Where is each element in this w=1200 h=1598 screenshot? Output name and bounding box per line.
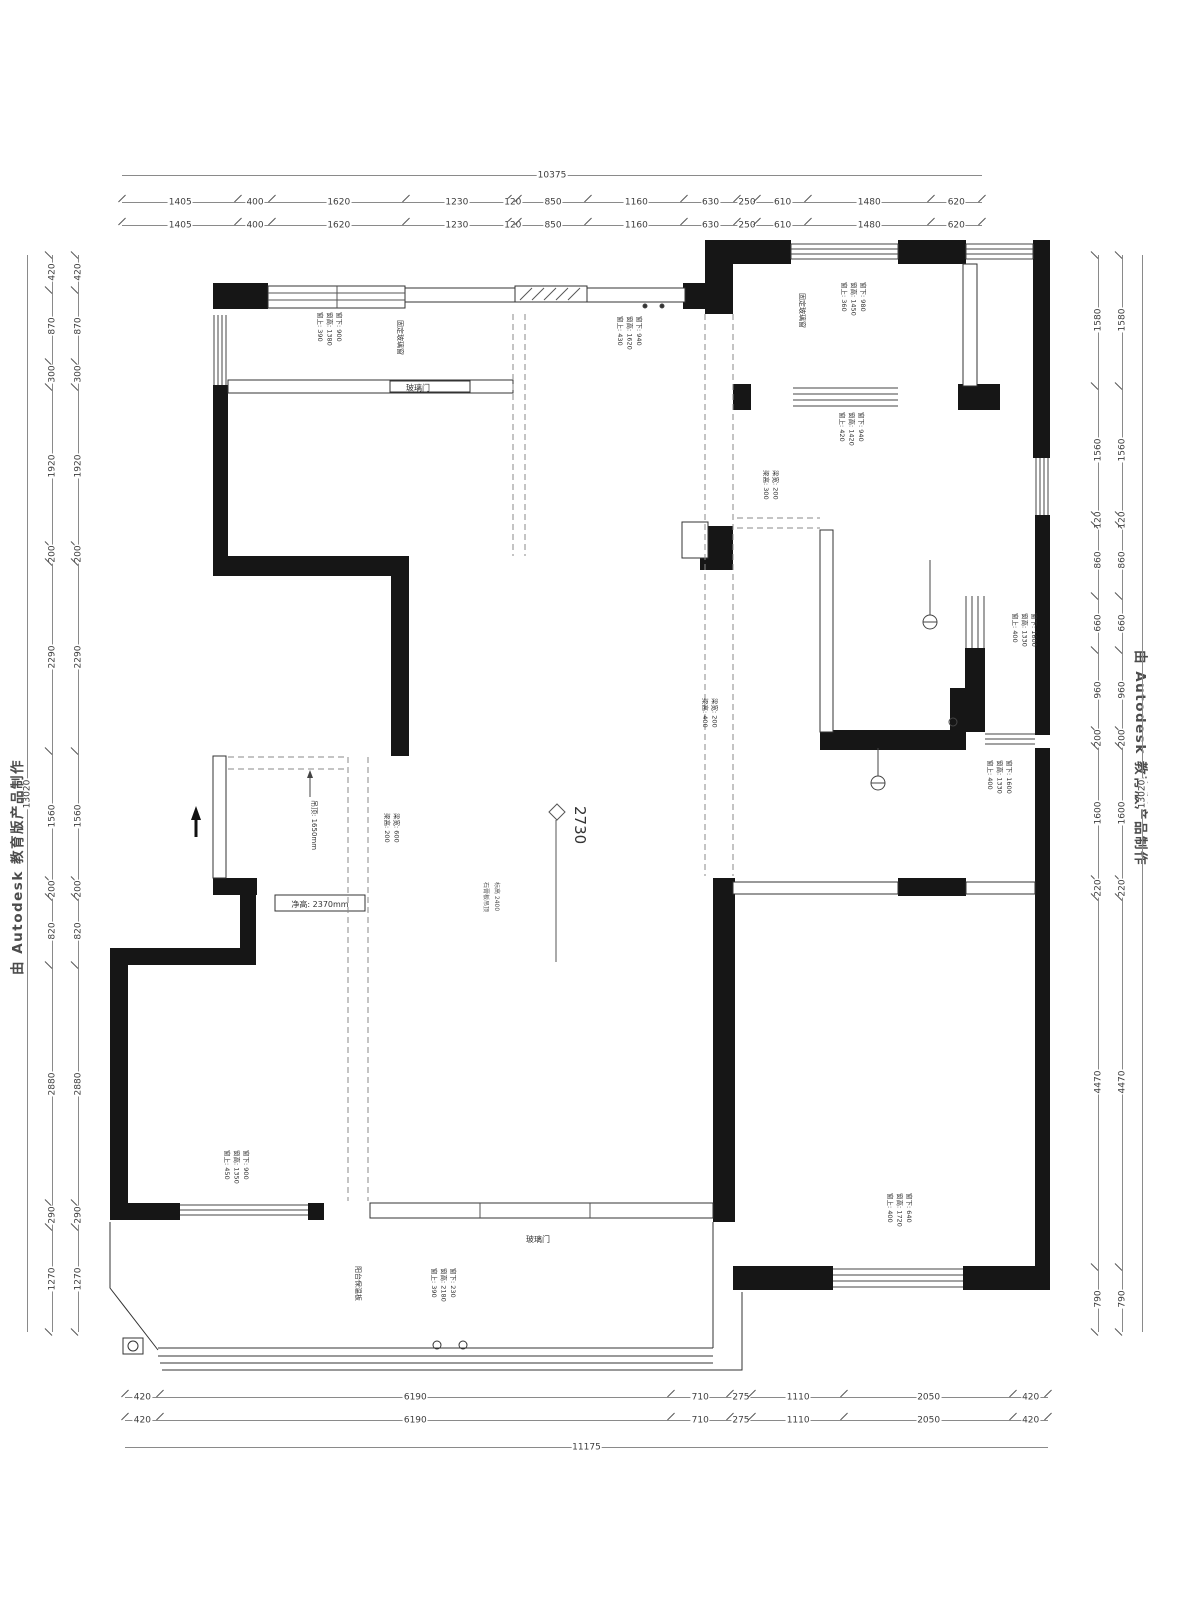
dimension-value: 300 xyxy=(48,365,57,384)
dimension-segment: 200 xyxy=(46,545,59,562)
window-annotation-line: 窗上: 390 xyxy=(316,312,325,342)
window-annotation-line: 窗下: 980 xyxy=(859,282,868,312)
dimension-segment: 870 xyxy=(46,290,59,362)
dim-chain-left-col1: 4208703001920200229015602008202880290127… xyxy=(46,255,59,1332)
dimension-segment: 300 xyxy=(46,362,59,387)
dimension-value: 620 xyxy=(947,198,966,207)
dimension-value: 660 xyxy=(1118,614,1127,633)
dimension-value: 6190 xyxy=(403,1393,428,1402)
dimension-segment: 1110 xyxy=(752,1414,844,1427)
dimension-value: 860 xyxy=(1118,551,1127,570)
clear-height-label: 净高: 2370mm xyxy=(291,899,348,909)
dim-chain-left-col2: 4208703001920200229015602008202880290127… xyxy=(72,255,85,1332)
dimension-value: 790 xyxy=(1094,1290,1103,1309)
dimension-value: 620 xyxy=(947,221,966,230)
dimension-segment: 1230 xyxy=(406,196,508,209)
dimension-value: 1560 xyxy=(1094,438,1103,463)
dimension-segment: 1480 xyxy=(808,219,931,232)
dimension-value: 200 xyxy=(48,879,57,898)
dimension-segment: 710 xyxy=(671,1391,730,1404)
dimension-value: 1620 xyxy=(326,221,351,230)
window-annotation-line: 窗下: 640 xyxy=(905,1193,914,1223)
dimension-segment: 1620 xyxy=(272,196,406,209)
dimension-segment: 1920 xyxy=(72,387,85,546)
dimension-value: 275 xyxy=(731,1393,750,1402)
dimension-value: 400 xyxy=(245,198,264,207)
dimension-segment: 660 xyxy=(1092,596,1105,651)
window-annotation-line: 窗高: 1620 xyxy=(626,316,635,350)
dimension-segment: 1480 xyxy=(808,196,931,209)
dimension-value: 4470 xyxy=(1094,1069,1103,1094)
dimension-value: 960 xyxy=(1094,681,1103,700)
dimension-segment: 960 xyxy=(1092,650,1105,729)
dimension-value: 960 xyxy=(1118,681,1127,700)
dimension-value: 2050 xyxy=(916,1416,941,1425)
dimension-segment: 630 xyxy=(684,196,736,209)
fixed-glass-label-left: 固定玻璃窗 xyxy=(396,320,405,355)
dimension-value: 200 xyxy=(74,544,83,563)
window-annotation-line: 窗上: 430 xyxy=(616,316,625,346)
glass-door-label-bottom: 玻璃门 xyxy=(526,1234,550,1244)
dimension-segment: 620 xyxy=(931,196,982,209)
dimension-value: 630 xyxy=(701,221,720,230)
window-annotation-line: 窗高: 1420 xyxy=(848,412,857,446)
dimension-value: 2290 xyxy=(74,644,83,669)
dimension-value: 220 xyxy=(1118,878,1127,897)
dimension-value: 6190 xyxy=(403,1416,428,1425)
dimension-segment: 1600 xyxy=(1116,746,1129,878)
dimension-segment: 610 xyxy=(757,219,808,232)
dimension-value: 2880 xyxy=(48,1071,57,1096)
dimension-value: 1480 xyxy=(857,198,882,207)
dimension-value: 820 xyxy=(74,921,83,940)
dimension-value: 420 xyxy=(1021,1416,1040,1425)
dim-total-left-value: 13020 xyxy=(23,778,32,809)
dimension-value: 2290 xyxy=(48,644,57,669)
window-annotation-line: 窗上: 400 xyxy=(886,1193,895,1223)
dimension-segment: 1600 xyxy=(1092,746,1105,878)
dimension-value: 200 xyxy=(74,879,83,898)
dimension-value: 1560 xyxy=(48,803,57,828)
window-annotation-line: 窗高: 1350 xyxy=(233,1150,242,1184)
dimension-segment: 2880 xyxy=(46,965,59,1203)
window-annotation-line: 窗下: 940 xyxy=(635,316,644,346)
floorplan-drawing: 2730 玻璃门 玻璃门 净高: 2370mm 吊顶: 1650mm 固定玻璃窗… xyxy=(0,0,1200,1598)
dimension-segment: 1405 xyxy=(122,196,238,209)
ceiling-height-value: 2730 xyxy=(571,806,589,844)
window-annotation-line: 窗高: 1720 xyxy=(896,1193,905,1227)
dimension-segment: 660 xyxy=(1116,596,1129,651)
dimension-value: 610 xyxy=(773,198,792,207)
dimension-value: 710 xyxy=(691,1416,710,1425)
dim-total-right: 13020 xyxy=(1136,255,1149,1332)
dimension-segment: 420 xyxy=(72,255,85,290)
dimension-segment: 630 xyxy=(684,219,736,232)
dim-total-bottom-value: 11175 xyxy=(571,1443,602,1452)
dimension-segment: 1620 xyxy=(272,219,406,232)
dimension-segment: 870 xyxy=(72,290,85,362)
dimension-value: 1580 xyxy=(1118,308,1127,333)
dimension-segment: 2050 xyxy=(844,1414,1013,1427)
window-annotation-line: 窗上: 390 xyxy=(430,1268,439,1298)
balcony-rails xyxy=(110,1222,742,1370)
dimension-value: 870 xyxy=(48,316,57,335)
dimension-segment: 790 xyxy=(1116,1267,1129,1332)
window-annotation-line: 窗上: 450 xyxy=(223,1150,232,1180)
window-annotation-line: 窗下: 900 xyxy=(335,312,344,342)
dimension-value: 790 xyxy=(1118,1290,1127,1309)
window-annotation-line: 梁宽: 200 xyxy=(772,470,781,500)
window-annotation-line: 梁高: 300 xyxy=(762,470,771,500)
dim-total-top-value: 10375 xyxy=(537,171,568,180)
dimension-segment: 420 xyxy=(46,255,59,290)
dimension-segment: 1560 xyxy=(46,751,59,880)
dimension-segment: 220 xyxy=(1092,879,1105,897)
dimension-value: 290 xyxy=(74,1205,83,1224)
dimension-segment: 6190 xyxy=(160,1414,671,1427)
dimension-value: 1600 xyxy=(1118,800,1127,825)
dimension-value: 200 xyxy=(1094,728,1103,747)
dimension-value: 820 xyxy=(48,921,57,940)
dimension-value: 870 xyxy=(74,316,83,335)
dimension-segment: 860 xyxy=(1092,525,1105,596)
dimension-segment: 1160 xyxy=(588,219,684,232)
dimension-value: 4470 xyxy=(1118,1069,1127,1094)
entry-arrow-icon xyxy=(191,806,201,837)
dimension-segment: 200 xyxy=(46,880,59,897)
dim-total-bottom: 11175 xyxy=(125,1441,1048,1454)
window-annotation-line: 窗高: 2180 xyxy=(440,1268,449,1302)
window-annotation-line: 窗下: 230 xyxy=(449,1268,458,1298)
ceiling-height-marker: 2730 xyxy=(549,804,589,962)
detail-lines xyxy=(268,286,590,1218)
window-symbols xyxy=(180,244,1048,1287)
dim-chain-top-row1: 1405400162012301208501160630250610148062… xyxy=(122,196,982,209)
window-annotation-line: 窗高: 1330 xyxy=(996,760,1005,794)
dimension-segment: 1580 xyxy=(1116,255,1129,386)
dimension-segment: 850 xyxy=(518,196,588,209)
dimension-value: 1405 xyxy=(168,198,193,207)
dim-chain-bottom-row1: 420619071027511102050420 xyxy=(125,1391,1048,1404)
dimension-value: 1580 xyxy=(1094,308,1103,333)
dimension-value: 420 xyxy=(1021,1393,1040,1402)
dimension-value: 290 xyxy=(48,1205,57,1224)
dim-total-top: 10375 xyxy=(122,169,982,182)
window-annotation-line: 梁高: 400 xyxy=(701,698,710,728)
dimension-value: 200 xyxy=(48,544,57,563)
dimension-value: 400 xyxy=(245,221,264,230)
dimension-segment: 200 xyxy=(72,880,85,897)
dimension-value: 850 xyxy=(543,198,562,207)
dimension-value: 660 xyxy=(1094,614,1103,633)
dimension-value: 1480 xyxy=(857,221,882,230)
dimension-segment: 1580 xyxy=(1092,255,1105,386)
dimension-segment: 275 xyxy=(730,1414,753,1427)
window-annotation-line: 梁宽: 200 xyxy=(711,698,720,728)
wall-solids xyxy=(110,240,1050,1290)
dimension-segment: 610 xyxy=(757,196,808,209)
dimension-segment: 2050 xyxy=(844,1391,1013,1404)
dimension-segment: 860 xyxy=(1116,525,1129,596)
dimension-segment: 1270 xyxy=(72,1227,85,1332)
dimension-segment: 960 xyxy=(1116,650,1129,729)
window-annotation-line: 窗上: 420 xyxy=(838,412,847,442)
dimension-segment: 1560 xyxy=(72,751,85,880)
dimension-segment: 1230 xyxy=(406,219,508,232)
dimension-segment: 820 xyxy=(72,897,85,965)
window-annotation-line: 窗上: 400 xyxy=(1011,613,1020,643)
dimension-segment: 790 xyxy=(1092,1267,1105,1332)
window-annotation-line: 窗高: 1450 xyxy=(850,282,859,316)
dim-chain-right-col2: 1580156012086066096020016002204470790 xyxy=(1116,255,1129,1332)
dim-chain-top-row2: 1405400162012301208501160630250610148062… xyxy=(122,219,982,232)
dimension-value: 1160 xyxy=(624,198,649,207)
dimension-value: 850 xyxy=(543,221,562,230)
dimension-segment: 2880 xyxy=(72,965,85,1203)
dimension-value: 630 xyxy=(701,198,720,207)
dimension-segment: 4470 xyxy=(1116,897,1129,1267)
dimension-value: 1600 xyxy=(1094,800,1103,825)
floorplan-sheet: 由 Autodesk 教育版产品制作 由 Autodesk 教育版产品制作 xyxy=(0,0,1200,1598)
dimension-segment: 420 xyxy=(1013,1414,1048,1427)
ceiling-detail-line1: 石膏板吊顶 xyxy=(482,882,490,912)
window-annotation-line: 窗下: 900 xyxy=(242,1150,251,1180)
dimension-segment: 2290 xyxy=(72,562,85,751)
dimension-segment: 1110 xyxy=(752,1391,844,1404)
dimension-value: 2880 xyxy=(74,1071,83,1096)
dimension-segment: 300 xyxy=(72,362,85,387)
window-annotation-line: 窗下: 940 xyxy=(857,412,866,442)
dimension-segment: 710 xyxy=(671,1414,730,1427)
window-annotation-line: 梁高: 200 xyxy=(383,813,392,843)
dimension-segment: 1160 xyxy=(588,196,684,209)
dimension-value: 420 xyxy=(133,1416,152,1425)
ceiling-note-label: 吊顶: 1650mm xyxy=(310,800,318,850)
dimension-segment: 420 xyxy=(1013,1391,1048,1404)
dimension-value: 1920 xyxy=(74,453,83,478)
dimension-segment: 250 xyxy=(737,219,758,232)
dimension-segment: 620 xyxy=(931,219,982,232)
dimension-segment: 1405 xyxy=(122,219,238,232)
dimension-segment: 820 xyxy=(46,897,59,965)
dimension-segment: 1560 xyxy=(1116,386,1129,515)
dimension-segment: 400 xyxy=(238,196,271,209)
dimension-value: 1405 xyxy=(168,221,193,230)
dimension-segment: 290 xyxy=(46,1203,59,1227)
dimension-segment: 850 xyxy=(518,219,588,232)
dimension-value: 1110 xyxy=(786,1393,811,1402)
dimension-segment: 1560 xyxy=(1092,386,1105,515)
glass-door-label-top: 玻璃门 xyxy=(406,383,430,393)
window-annotation-line: 窗高: 1380 xyxy=(326,312,335,346)
dimension-value: 1560 xyxy=(74,803,83,828)
dimension-segment: 290 xyxy=(72,1203,85,1227)
dimension-value: 2050 xyxy=(916,1393,941,1402)
balcony-note-label: 阳台保温板 xyxy=(354,1266,363,1301)
dimension-value: 1230 xyxy=(444,221,469,230)
dim-total-right-value: 13020 xyxy=(1138,778,1147,809)
dimension-value: 1270 xyxy=(74,1267,83,1292)
fixed-glass-label-right: 固定玻璃窗 xyxy=(798,293,807,328)
dimension-segment: 2290 xyxy=(46,562,59,751)
dimension-value: 275 xyxy=(731,1416,750,1425)
dim-chain-bottom-row2: 420619071027511102050420 xyxy=(125,1414,1048,1427)
dimension-value: 1620 xyxy=(326,198,351,207)
dimension-value: 1160 xyxy=(624,221,649,230)
dimension-segment: 4470 xyxy=(1092,897,1105,1267)
dimension-segment: 6190 xyxy=(160,1391,671,1404)
window-annotation-line: 窗上: 360 xyxy=(840,282,849,312)
dimension-segment: 1270 xyxy=(46,1227,59,1332)
ceiling-detail-line2: 标高 2400 xyxy=(493,882,501,911)
dimension-segment: 250 xyxy=(737,196,758,209)
dimension-value: 420 xyxy=(74,263,83,282)
ceiling-note-arrow xyxy=(307,770,313,778)
dimension-segment: 420 xyxy=(125,1414,160,1427)
dimension-value: 1270 xyxy=(48,1267,57,1292)
dimension-segment: 200 xyxy=(72,545,85,562)
dimension-value: 1920 xyxy=(48,453,57,478)
dim-total-left: 13020 xyxy=(21,255,34,1332)
dimension-value: 300 xyxy=(74,365,83,384)
window-annotation-line: 窗上: 400 xyxy=(986,760,995,790)
dimension-value: 220 xyxy=(1094,878,1103,897)
window-annotation-line: 窗高: 1330 xyxy=(1021,613,1030,647)
dimension-segment: 420 xyxy=(125,1391,160,1404)
dimension-value: 420 xyxy=(48,263,57,282)
dimension-value: 420 xyxy=(133,1393,152,1402)
dimension-segment: 400 xyxy=(238,219,271,232)
dimension-value: 200 xyxy=(1118,728,1127,747)
dimension-value: 1230 xyxy=(444,198,469,207)
dimension-segment: 1920 xyxy=(46,387,59,546)
window-annotation-line: 窗下: 1600 xyxy=(1030,613,1039,647)
window-annotation-line: 窗下: 1600 xyxy=(1005,760,1014,794)
dimension-value: 860 xyxy=(1094,551,1103,570)
window-annotation-line: 梁宽: 600 xyxy=(393,813,402,843)
dim-chain-right-col1: 1580156012086066096020016002204470790 xyxy=(1092,255,1105,1332)
dimension-segment: 275 xyxy=(730,1391,753,1404)
dimension-value: 610 xyxy=(773,221,792,230)
dimension-value: 1110 xyxy=(786,1416,811,1425)
dimension-value: 1560 xyxy=(1118,438,1127,463)
dimension-segment: 220 xyxy=(1116,879,1129,897)
dimension-value: 710 xyxy=(691,1393,710,1402)
